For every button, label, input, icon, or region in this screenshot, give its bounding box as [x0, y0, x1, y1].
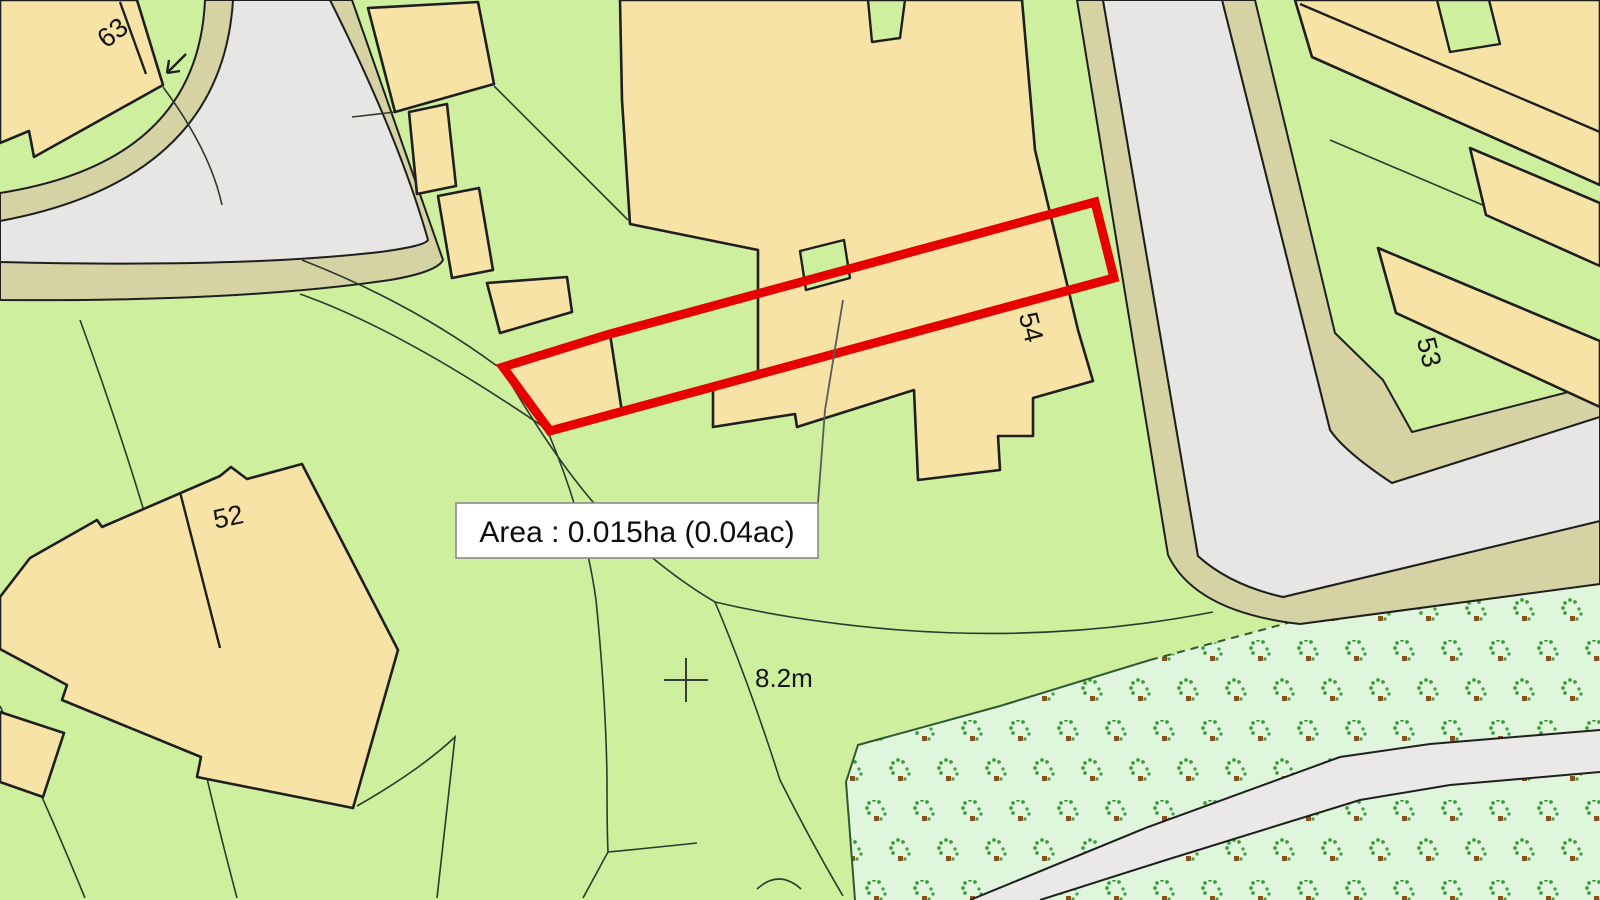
- area-label-text: Area : 0.015ha (0.04ac): [479, 516, 794, 549]
- map-viewport: 63 52 54 53 8.2m Area : 0.015ha (0.04ac): [0, 0, 1600, 900]
- house-number-52: 52: [210, 499, 246, 535]
- spot-height-label: 8.2m: [755, 663, 813, 693]
- terrace-gap: [868, 0, 905, 42]
- map-canvas: 63 52 54 53 8.2m Area : 0.015ha (0.04ac): [0, 0, 1600, 900]
- outbuilding: [409, 104, 456, 194]
- area-label[interactable]: Area : 0.015ha (0.04ac): [456, 503, 818, 558]
